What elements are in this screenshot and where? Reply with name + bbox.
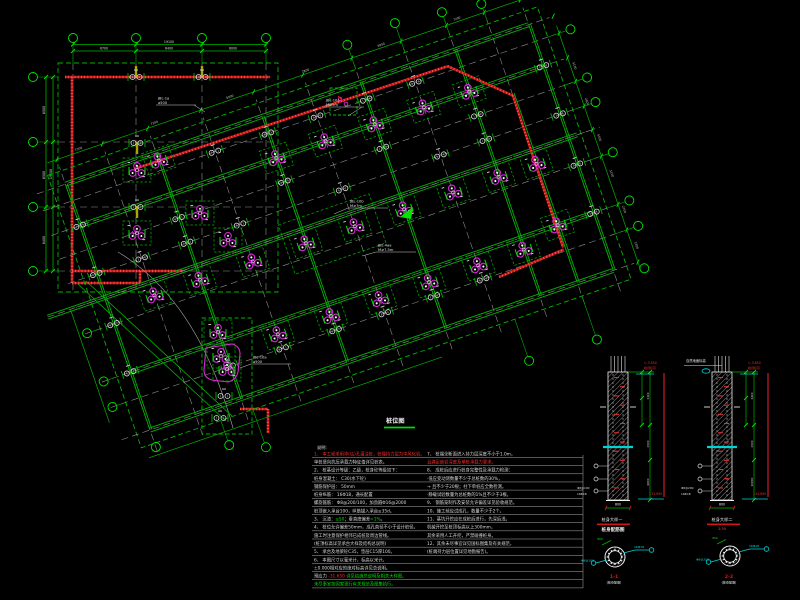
grid-bubble	[565, 24, 576, 35]
rebar-dot	[611, 562, 613, 564]
pile-tag-speck	[467, 260, 470, 262]
bubble-stem	[548, 31, 566, 37]
rebar-dot	[729, 562, 731, 564]
grid-bubble	[198, 34, 207, 43]
pile-center-dot	[376, 302, 378, 304]
shaft-red-mark	[614, 487, 619, 488]
pile-tag-speck	[212, 348, 215, 349]
pile-tag-speck	[143, 290, 146, 292]
pile-tag-speck	[188, 274, 191, 276]
pair-bracket	[440, 290, 443, 298]
pile-cross	[338, 328, 339, 331]
notes-line: → 且不少于20根；柱下单桩应全数检测。	[427, 483, 506, 490]
pair-bracket	[484, 109, 487, 117]
shaft-red-mark	[620, 441, 625, 442]
pile-inner-ring	[724, 550, 737, 563]
notes-block: 1、 本工程采用冲(钻)孔灌注桩，桩端持力层为中风化岩。 单桩竖向抗压承载力特征…	[312, 450, 583, 588]
pile-tag-speck	[314, 136, 317, 138]
pile-center-dot	[232, 242, 234, 244]
notes-line: 单桩竖向抗压承载力特征值详见桩表。	[314, 458, 387, 465]
pile-center-dot	[199, 208, 201, 210]
beam-line	[362, 82, 447, 328]
dim-text: JBL-10b	[349, 199, 364, 203]
rebar-dot	[723, 559, 725, 561]
rebar-dot	[621, 556, 623, 558]
pile-center-dot	[196, 283, 198, 285]
dim-text: 800	[719, 503, 725, 507]
rebar-dot	[726, 561, 728, 563]
pair-bracket	[389, 141, 392, 149]
pile-plan-drawing[interactable]: 1910067006400600065006500640019400720072…	[0, 0, 800, 600]
shaft-red-mark	[724, 405, 729, 406]
shaft-red-mark	[724, 423, 729, 424]
grid-bubble	[29, 267, 38, 276]
pile-tag-speck	[234, 246, 237, 247]
beam-line	[264, 116, 349, 362]
shaft-red-mark	[718, 487, 723, 488]
notes-line: 桩身纵筋： 16Φ18，通长配置	[314, 491, 373, 498]
grid-bubble	[607, 146, 618, 157]
pile-center-dot	[521, 245, 523, 247]
grid-bubble	[342, 39, 353, 50]
rebar-dot	[608, 553, 610, 555]
rebar-dot	[726, 549, 728, 551]
dim-text: 16Φ18	[681, 492, 691, 496]
pile-center-dot	[220, 351, 222, 353]
rebar-dot	[733, 561, 735, 563]
pile-center-dot	[216, 358, 218, 360]
pile-center-dot	[158, 296, 160, 298]
shaft-red-mark	[724, 386, 729, 387]
bubble-stem	[349, 49, 356, 69]
pile-center-dot	[275, 329, 277, 331]
pile-tag-speck	[128, 225, 131, 226]
pile-tag-speck	[294, 238, 297, 240]
elev2-caption-underline	[707, 524, 740, 526]
pile-tag-speck	[128, 162, 131, 163]
shaft-red-mark	[614, 451, 619, 452]
beam-line	[129, 211, 592, 371]
pile-tag-speck	[135, 136, 139, 137]
pile-center-dot	[274, 153, 276, 155]
bubble-stem	[615, 227, 633, 233]
pile-inner-ring	[609, 551, 622, 564]
pile-center-dot	[384, 299, 386, 301]
bubble-stem	[590, 154, 608, 160]
notes-line: 施工时注意保护相邻已成桩及周边管线。	[314, 532, 391, 539]
dim-line	[47, 0, 529, 163]
pile-center-dot	[136, 165, 138, 167]
pile-center-dot	[222, 371, 224, 373]
pile-cross	[482, 140, 483, 143]
elev1-caption: 桩身大样一	[602, 516, 623, 523]
dim-text: 800	[615, 503, 621, 507]
pile-center-dot	[562, 226, 564, 228]
dim-text: Φ8@200	[696, 558, 709, 562]
pile-tag-speck	[224, 338, 227, 339]
pile-tag-speck	[319, 311, 322, 313]
ramp-beam	[78, 284, 226, 421]
grid-centerline	[102, 206, 614, 382]
pile-tag-speck	[417, 277, 420, 279]
pile-cross	[218, 149, 219, 152]
bubble-stem	[515, 319, 528, 356]
pile-tag-speck	[368, 294, 371, 296]
dim-line	[556, 26, 640, 270]
grid-centerline	[85, 157, 597, 333]
dim-tick	[635, 259, 640, 264]
pile-tag-speck	[363, 119, 366, 121]
dim-text: 10800	[750, 477, 754, 486]
pile-center-dot	[372, 119, 374, 121]
construction-curve	[118, 252, 233, 428]
rebar-dot	[729, 548, 731, 550]
notes-line: 5、 承台及地梁砼C35，垫层C15厚100。	[314, 548, 395, 555]
pile-cross	[573, 164, 574, 167]
pile-tag-speck	[218, 361, 221, 362]
dim-text: 3300	[633, 241, 639, 250]
pile-center-dot	[163, 161, 165, 163]
pile-center-dot	[195, 215, 197, 217]
dim-text: 19100	[164, 40, 174, 44]
dim-text: 2700	[621, 205, 627, 214]
pile-center-dot	[152, 290, 154, 292]
pile-cluster-tri	[214, 228, 242, 252]
ground-mark-cyan	[702, 369, 710, 373]
shaft-red-mark	[614, 377, 619, 378]
pile-center-dot	[496, 172, 498, 174]
pile-center-dot	[282, 335, 284, 337]
rebar-dot	[611, 550, 613, 552]
rebar-dot	[733, 549, 735, 551]
rebar-callout-circle	[764, 547, 769, 552]
pile-tag-speck	[241, 256, 244, 258]
pile-cross	[181, 216, 182, 219]
grid-bubble	[389, 17, 400, 28]
dim-tick	[54, 157, 59, 162]
pile-center-dot	[248, 265, 250, 267]
pile-cross	[362, 99, 363, 102]
pile-center-dot	[204, 280, 206, 282]
pile-center-dot	[427, 277, 429, 279]
notes-line: 未尽事宜按国家现行有关规范及图集执行。	[314, 581, 396, 588]
shaft-red-mark	[614, 432, 619, 433]
grid-bubble	[29, 73, 38, 82]
pile-cross	[243, 222, 244, 225]
callout-circle	[594, 464, 598, 468]
notes-line: 8、 成桩后应进行桩身完整性及承载力检测：	[427, 467, 513, 474]
pile-elevation-detail: 1400260010800▽-3.850桩顶标高Φ8@20016Φ18800-3…	[681, 356, 768, 510]
bubble-stem	[564, 79, 582, 85]
notes-line: 9、 钢筋笼制作及安装允许偏差详见验收规范。	[427, 499, 517, 506]
pile-center-dot	[359, 227, 361, 229]
shaft-red-mark	[620, 405, 625, 406]
dim-text: 800	[597, 537, 603, 541]
pile-tag-speck	[191, 205, 194, 206]
pile-center-dot	[321, 144, 323, 146]
pile-tag-speck	[266, 329, 269, 331]
rebar-leader	[739, 549, 765, 552]
grid-bubble	[436, 6, 447, 17]
pile-tag-speck	[143, 239, 146, 240]
pile-center-dot	[204, 215, 206, 217]
notes-line: 12、其余未尽事宜详见国标图集及有关规范，	[427, 540, 514, 547]
bubble-stem	[91, 329, 100, 332]
pile-center-dot	[222, 334, 224, 336]
pile-tag-speck	[233, 375, 236, 376]
dim-text: ▽-3.850	[748, 361, 761, 365]
shaft-red-mark	[620, 460, 625, 461]
pile-cap-outline	[214, 228, 242, 252]
pair-bracket	[206, 151, 209, 159]
notes-line: 桩身混凝土： C30(水下砼)	[314, 475, 366, 482]
rebar-dot	[620, 553, 622, 555]
pile-center-dot	[528, 250, 530, 252]
pile-center-dot	[141, 172, 143, 174]
pile-center-dot	[451, 187, 453, 189]
pile-tag-speck	[209, 324, 212, 325]
dim-text: 6500	[42, 171, 46, 179]
pile-tag-speck	[222, 389, 226, 390]
rebar-dot	[607, 556, 609, 558]
pile-tag-speck	[147, 155, 150, 157]
pile-cross	[271, 131, 272, 134]
dim-text: 6400	[42, 236, 46, 244]
pile-center-dot	[303, 238, 305, 240]
dim-text: 6500	[42, 106, 46, 114]
pile-center-dot	[223, 242, 225, 244]
dim-text: 5100	[609, 169, 615, 178]
pile-center-dot	[553, 228, 555, 230]
bubble-stem	[443, 16, 450, 36]
pile-center-dot	[449, 196, 451, 198]
pile-cross	[590, 213, 591, 216]
cad-canvas[interactable]: 1910067006400600065006500640019400720072…	[0, 0, 800, 600]
pile-cap-outline	[123, 221, 151, 245]
pile-center-dot	[213, 334, 215, 336]
shaft-red-mark	[718, 395, 723, 396]
beam-line	[531, 24, 616, 270]
rebar-dot	[735, 559, 737, 561]
bubble-stem	[573, 104, 591, 110]
notes-line: 10、施工前应试成孔，数量不少于2个。	[427, 507, 504, 514]
notes-line: 桩顶嵌入承台100，纵筋锚入承台≥35d。	[314, 507, 394, 514]
leader-tail	[334, 208, 348, 214]
pile-tag-speck	[278, 341, 282, 343]
elev2-subcaption: 1:50	[718, 527, 727, 531]
grid-bubble	[590, 96, 601, 107]
rebar-dot	[722, 555, 724, 557]
pile-center-dot	[370, 127, 372, 129]
notes-line: ·静载试验数量为总桩数的1%且不少于3根。	[427, 491, 511, 498]
pile-center-dot	[225, 358, 227, 360]
dim-text: 5300	[596, 133, 602, 142]
notes-line: 其余采用人工开挖，严禁碰撞桩身。	[427, 532, 496, 539]
pile-cross	[320, 114, 321, 117]
pile-center-dot	[323, 136, 325, 138]
grid-bubble	[581, 72, 592, 83]
irregular-cap-magenta	[204, 344, 240, 382]
notes-line: 6、 本图尺寸以毫米计，标高以米计。	[314, 556, 387, 563]
dim-text: JBL-4⌀a	[377, 243, 391, 247]
pile-tag-speck	[143, 176, 146, 177]
pile-center-dot	[425, 285, 427, 287]
bubble-stem	[221, 420, 228, 440]
section1-label: 1-1	[610, 574, 618, 580]
shaft-red-mark	[620, 478, 625, 479]
pile-tag-speck	[479, 272, 483, 274]
pile-elevation-detail: 110026009800▽-3.550桩顶标高Φ8@10016Φ18800-31…	[577, 356, 664, 510]
rebar-dot	[614, 549, 616, 551]
dim-text: 2600	[646, 440, 650, 447]
pile-center-dot	[465, 95, 467, 97]
notes-line: (桩端持力层位置详见地勘报告)。	[427, 548, 491, 555]
pile-center-dot	[280, 158, 282, 160]
pile-tag-speck	[200, 70, 204, 71]
callout-circle	[594, 477, 598, 481]
notes-line: 且满足嵌岩深度及单桩承载力要求。	[427, 458, 496, 465]
cap-pile	[344, 102, 348, 106]
plan-overlays: JBL-1a⌀500JBL-10aM≥7mJBL-10bM≥7mJBL-4⌀aM…	[123, 66, 416, 434]
pair-bracket	[372, 93, 375, 101]
rebar-callout-circle	[649, 548, 654, 553]
pile-cross	[190, 240, 191, 243]
dim-text: ▽-3.550	[644, 361, 657, 365]
plan-leader-label: JBL-10a⌀500	[240, 355, 291, 368]
grid-bubble	[632, 220, 643, 231]
elev1-caption-underline	[597, 524, 630, 526]
grid-bubble	[476, 0, 487, 10]
notes-line: 预应力 -31.650 详见结施总说明及相关大样图。	[314, 573, 406, 580]
shaft-red-mark	[718, 432, 723, 433]
dim-text: 自然地面标高	[686, 358, 706, 363]
shaft-red-mark	[620, 386, 625, 387]
pile-tag-speck	[546, 220, 549, 222]
pile-tag-speck	[135, 200, 139, 201]
rebar-dot	[620, 560, 622, 562]
dim-text: JBL-10a	[252, 355, 267, 359]
pile-center-dot	[534, 159, 536, 161]
pile-center-dot	[136, 228, 138, 230]
pile-center-dot	[274, 337, 276, 339]
shaft-red-mark	[718, 377, 723, 378]
grid-bubble	[223, 439, 234, 450]
pile-center-dot	[540, 164, 542, 166]
dim-text: 16Φ18	[749, 544, 759, 548]
dim-text: 1100	[646, 392, 650, 399]
pile-center-dot	[379, 125, 381, 127]
pile-center-dot	[156, 155, 158, 157]
stirrup-leader	[596, 560, 607, 563]
rebar-dot	[735, 552, 737, 554]
leader-tail	[362, 252, 376, 256]
elev2-caption: 桩身大样二	[712, 516, 733, 523]
grid-bubble	[262, 34, 271, 43]
pile-tag-speck	[206, 219, 209, 220]
pile-center-dot	[400, 213, 402, 215]
shaft-red-mark	[620, 423, 625, 424]
rebar-leader	[624, 550, 650, 553]
pair-bracket	[231, 223, 234, 231]
pile-center-dot	[421, 102, 423, 104]
pile-cap-outline	[186, 201, 214, 225]
grid-bubble	[29, 203, 38, 212]
notes-line: 机械开挖至桩顶标高以上300mm，	[427, 524, 495, 531]
section1-sublabel: (桩身配筋)	[607, 580, 622, 585]
grid-bubble	[69, 34, 78, 43]
notes-line: (桩顶标高详见承台大样及结构总说明)	[314, 540, 386, 547]
dim-text: Φ8@200	[681, 486, 694, 490]
pile-center-dot	[377, 294, 379, 296]
grid-bubble	[29, 138, 38, 147]
pile-center-dot	[503, 177, 505, 179]
beam-line	[66, 27, 529, 187]
dim-text: 1400	[750, 392, 754, 399]
pile-cross	[539, 66, 540, 69]
pile-center-dot	[457, 193, 459, 195]
bubble-stem	[108, 377, 117, 380]
pair-bracket	[178, 242, 181, 250]
dim-line	[70, 309, 109, 422]
pair-bracket	[327, 329, 330, 337]
pile-center-dot	[150, 298, 152, 300]
beam-line	[47, 133, 576, 315]
pile-center-dot	[402, 204, 404, 206]
bubble-stem	[253, 409, 265, 443]
pile-center-dot	[352, 221, 354, 223]
rebar-dot	[608, 560, 610, 562]
pile-tag-speck	[392, 204, 395, 206]
pile-center-dot	[433, 282, 435, 284]
dim-text: JBL-10a	[325, 98, 340, 102]
grid-centerline	[43, 34, 555, 210]
leader-tail	[194, 105, 205, 112]
rebar-dot	[723, 552, 725, 554]
pile-cross	[138, 258, 139, 261]
pile-center-dot	[519, 253, 521, 255]
pile-tag-speck	[458, 86, 461, 88]
shaft-red-mark	[724, 478, 729, 479]
pair-bracket	[259, 132, 262, 140]
grid-bubble	[523, 355, 534, 366]
pile-center-dot	[132, 235, 134, 237]
shaft-red-mark	[614, 469, 619, 470]
pile-cross	[345, 187, 346, 190]
pile-cluster-tri	[123, 221, 151, 245]
rebar-dot	[618, 562, 620, 564]
shaft-red-mark	[718, 414, 723, 415]
pile-center-dot	[197, 275, 199, 277]
notes-header: 说明:	[317, 444, 327, 451]
callout-circle	[594, 489, 598, 493]
shaft-red-mark	[718, 451, 723, 452]
shaft-red-mark	[718, 469, 723, 470]
pile-section-detail: 16Φ18Φ8@200800	[696, 536, 769, 566]
beam-line	[457, 49, 542, 295]
pile-center-dot	[132, 172, 134, 174]
pile-tag-speck	[512, 244, 515, 246]
pile-tag-speck	[218, 411, 222, 412]
notes-line: 7、 桩端全断面进入持力层深度不小于1.0m，	[427, 450, 515, 457]
pile-tag-speck	[380, 306, 384, 308]
pile-shaft	[608, 372, 628, 500]
grid-bubble	[260, 441, 271, 452]
bubble-stem	[117, 402, 126, 405]
pile-cross	[379, 148, 380, 151]
pile-center-dot	[467, 87, 469, 89]
pile-center-dot	[301, 246, 303, 248]
pile-center-dot	[226, 364, 228, 366]
